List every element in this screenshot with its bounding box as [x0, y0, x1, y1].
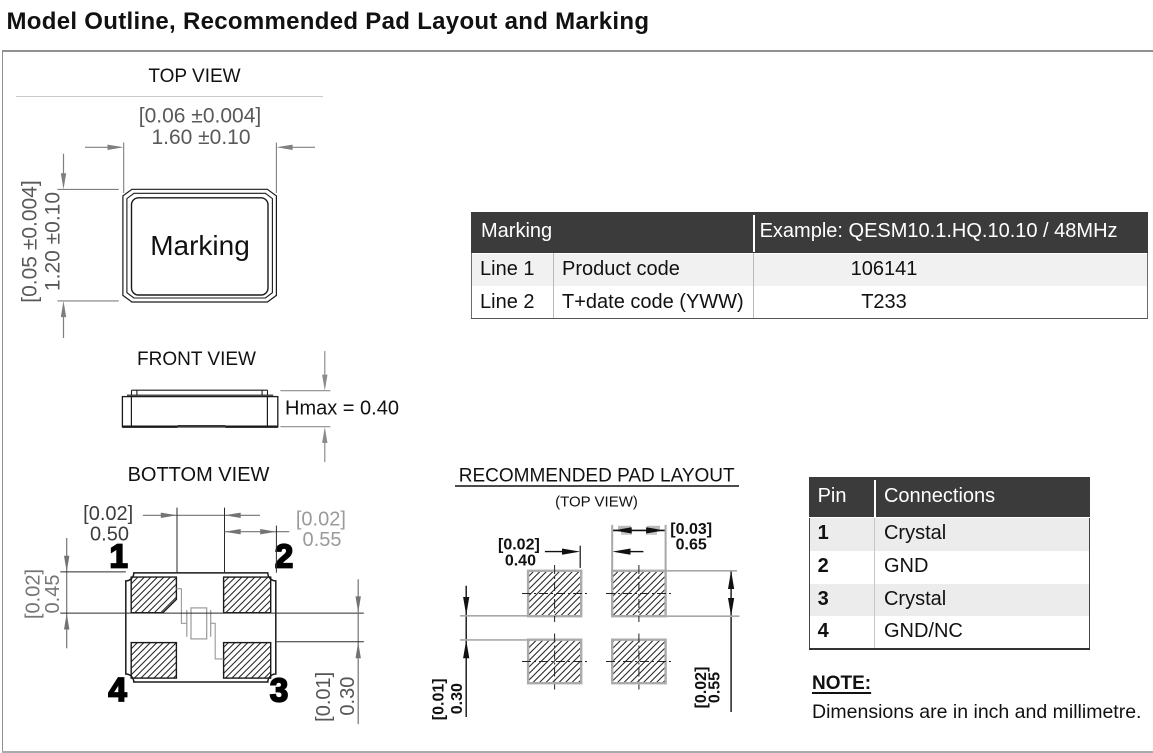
- svg-text:0.50: 0.50: [90, 523, 129, 545]
- svg-text:4: 4: [108, 671, 127, 708]
- svg-text:1.20 ±0.10: 1.20 ±0.10: [41, 192, 64, 291]
- svg-text:0.40: 0.40: [505, 553, 536, 570]
- svg-text:RECOMMENDED PAD LAYOUT: RECOMMENDED PAD LAYOUT: [459, 466, 735, 487]
- svg-text:0.65: 0.65: [676, 537, 707, 554]
- svg-text:3: 3: [270, 672, 288, 709]
- svg-text:0.45: 0.45: [42, 575, 64, 614]
- svg-text:[0.02]: [0.02]: [498, 537, 540, 554]
- svg-text:TOP VIEW: TOP VIEW: [148, 66, 240, 87]
- svg-text:0.30: 0.30: [337, 677, 359, 716]
- svg-text:0.55: 0.55: [303, 529, 342, 551]
- svg-text:[0.06 ±0.004]: [0.06 ±0.004]: [139, 105, 261, 128]
- svg-text:[0.05 ±0.004]: [0.05 ±0.004]: [19, 180, 42, 302]
- svg-text:Hmax = 0.40: Hmax = 0.40: [285, 398, 399, 420]
- svg-text:[0.03]: [0.03]: [670, 521, 712, 538]
- svg-text:[0.01]: [0.01]: [313, 672, 335, 722]
- svg-text:2: 2: [275, 538, 293, 575]
- svg-text:FRONT VIEW: FRONT VIEW: [137, 349, 256, 370]
- svg-text:0.30: 0.30: [449, 683, 466, 714]
- svg-text:BOTTOM VIEW: BOTTOM VIEW: [128, 464, 270, 486]
- svg-text:1.60 ±0.10: 1.60 ±0.10: [151, 126, 250, 149]
- svg-text:[0.02]: [0.02]: [83, 503, 133, 525]
- svg-text:[0.01]: [0.01]: [431, 678, 448, 720]
- svg-text:Marking: Marking: [150, 230, 250, 261]
- svg-text:[0.02]: [0.02]: [296, 509, 346, 531]
- svg-text:0.55: 0.55: [706, 672, 723, 703]
- svg-text:(TOP VIEW): (TOP VIEW): [555, 494, 638, 511]
